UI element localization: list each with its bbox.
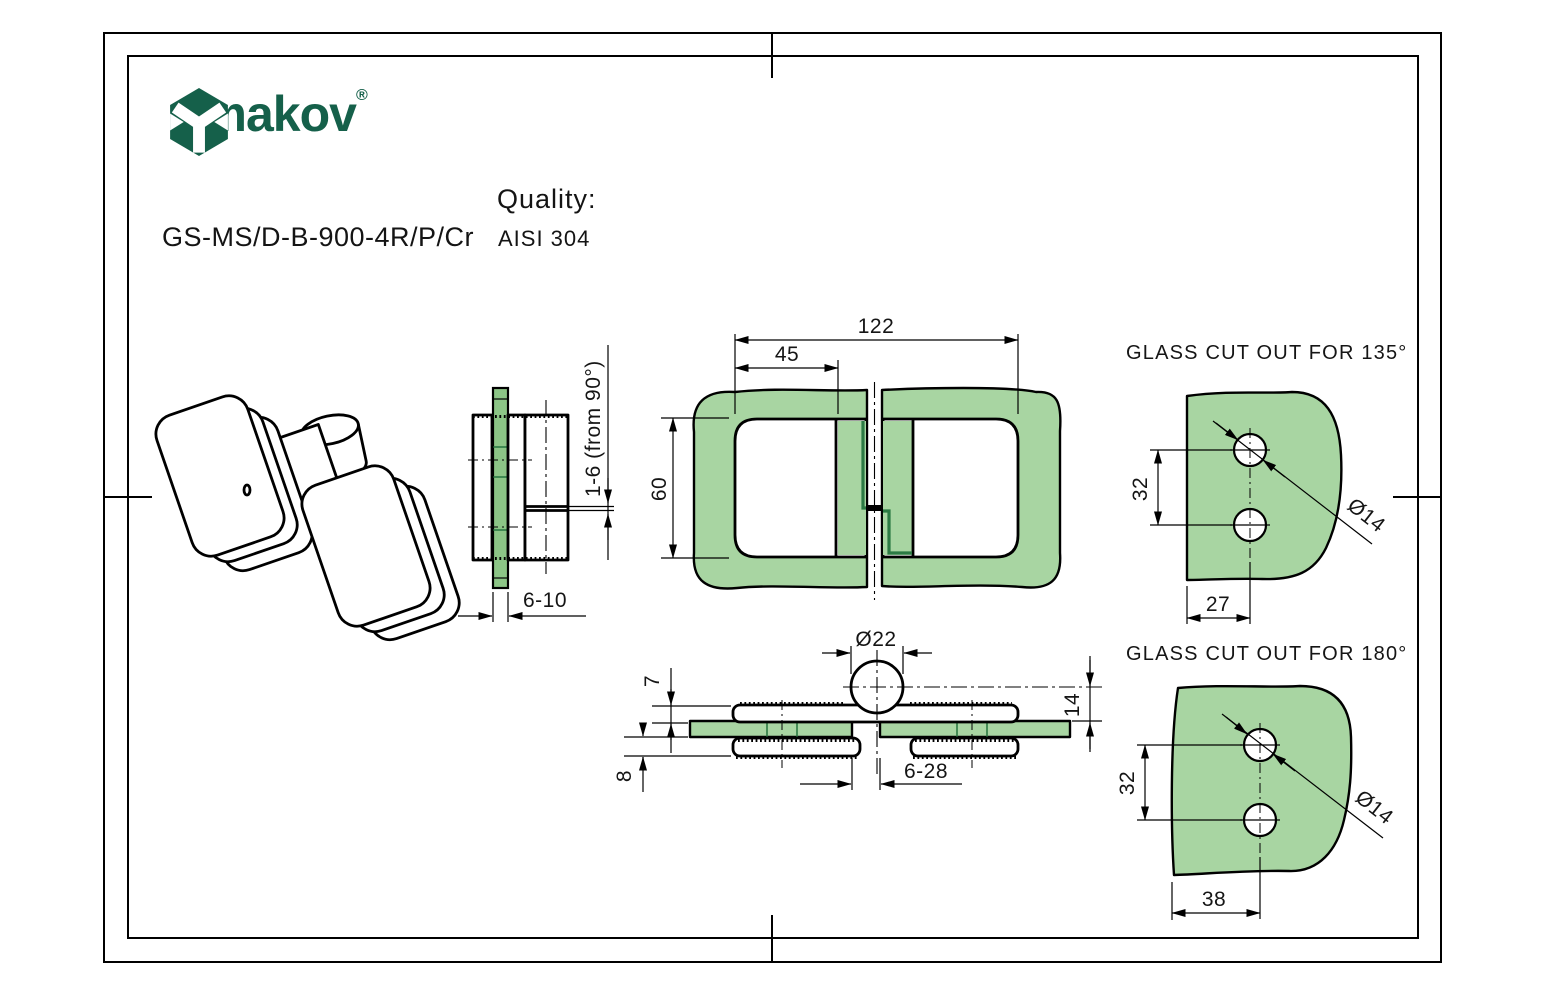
right-clamp-plate-3d: [297, 460, 465, 645]
dim-edge-offset-180-label: 38: [1202, 888, 1226, 911]
cutout-180-title: GLASS CUT OUT FOR 180°: [1126, 643, 1408, 665]
dim-edge-offset-180: 38: [1172, 882, 1260, 920]
cutout-180-view: GLASS CUT OUT FOR 180° 32 38: [1116, 643, 1408, 920]
quality-label: Quality:: [497, 184, 597, 215]
part-number: GS-MS/D-B-900-4R/P/Cr: [162, 222, 474, 253]
top-view: 122 45 60: [648, 315, 1060, 600]
dim-plate-above: 7: [641, 668, 731, 753]
cutout-180-glass: [1172, 686, 1351, 875]
dim-edge-offset-135-label: 27: [1206, 593, 1230, 616]
dim-knuckle-diameter-label: Ø22: [855, 628, 896, 651]
left-plate-side: [473, 415, 492, 560]
dim-adjustment-label: 1-6 (from 90°): [582, 360, 605, 497]
isometric-view: [151, 390, 465, 645]
cutout-135-view: GLASS CUT OUT FOR 135° 32 27: [1126, 342, 1408, 624]
quality-value: AISI 304: [498, 226, 590, 252]
umakov-hexagon-icon: [165, 86, 233, 158]
dim-height-label: 60: [648, 477, 671, 501]
dim-overall-width-label: 122: [858, 315, 895, 338]
glass-strip-right: [880, 721, 1070, 737]
dim-axis-height-label: 14: [1061, 693, 1084, 717]
left-clamp-plate-3d: [151, 390, 318, 576]
glass-strip-left: [690, 721, 852, 737]
dim-cutout-offset-label: 45: [775, 343, 799, 366]
front-view: Ø22 7 8: [613, 628, 1102, 792]
brand-logo: umakov ®: [165, 86, 368, 142]
cutout-135-title: GLASS CUT OUT FOR 135°: [1126, 342, 1408, 364]
drawing-sheet: 1-6 (from 90°) 6-10: [0, 0, 1545, 997]
dim-plate-below-label: 8: [613, 770, 636, 782]
cutout-135-glass: [1187, 392, 1341, 580]
dim-hole-spacing-180-label: 32: [1116, 771, 1139, 795]
side-view: 1-6 (from 90°) 6-10: [458, 345, 614, 622]
dim-gap: 6-28: [800, 758, 962, 790]
dim-glass-thickness: 6-10: [458, 589, 586, 622]
right-plate-side: [508, 415, 525, 560]
dim-hole-spacing-135-label: 32: [1129, 477, 1152, 501]
dim-edge-offset-135: 27: [1187, 586, 1250, 624]
dim-hole-diameter-180-label: Ø14: [1351, 786, 1398, 829]
registered-mark: ®: [356, 86, 368, 106]
dim-gap-label: 6-28: [904, 760, 948, 783]
dim-hole-diameter-135-label: Ø14: [1343, 494, 1390, 537]
dim-glass-thickness-label: 6-10: [523, 589, 567, 612]
dim-plate-above-label: 7: [641, 675, 664, 687]
dim-adjustment: 1-6 (from 90°): [582, 345, 608, 560]
